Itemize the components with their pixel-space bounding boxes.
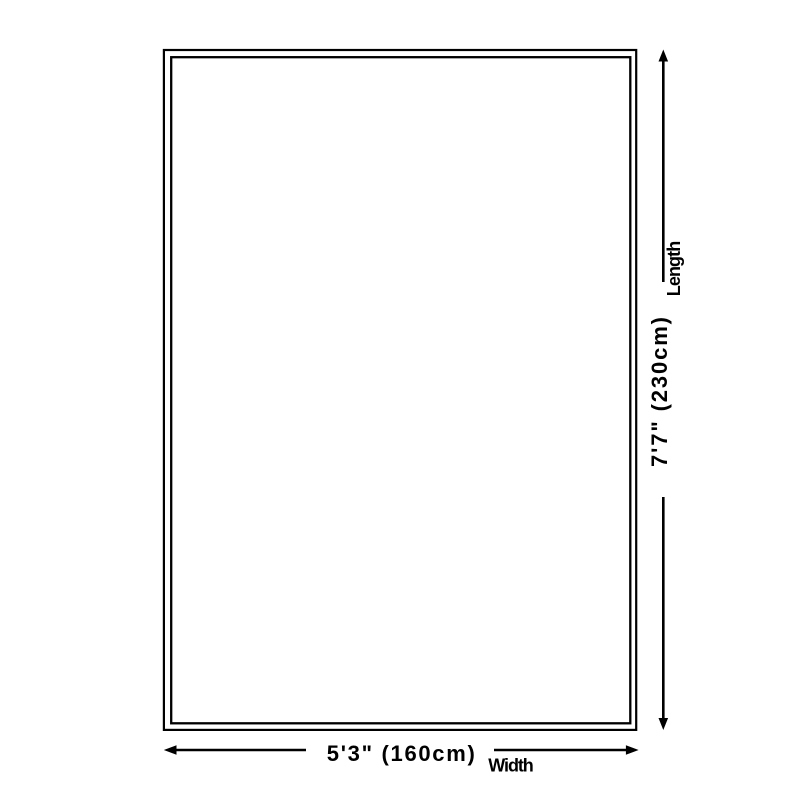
svg-text:Length: Length xyxy=(664,241,684,297)
svg-text:7'7" (230cm): 7'7" (230cm) xyxy=(647,317,672,467)
svg-text:Width: Width xyxy=(488,756,534,776)
svg-text:5'3" (160cm): 5'3" (160cm) xyxy=(327,741,475,766)
